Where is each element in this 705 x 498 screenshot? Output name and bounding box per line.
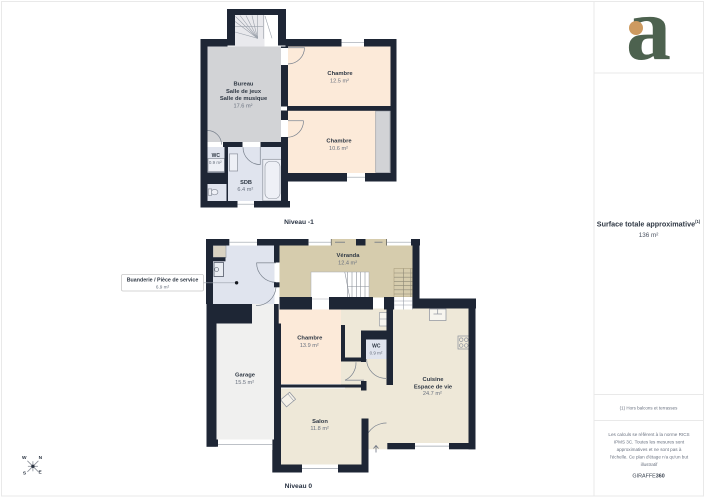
svg-text:24.7 m²: 24.7 m² (423, 391, 442, 397)
svg-text:IPMS 3C. Toutes les mesures so: IPMS 3C. Toutes les mesures sont (614, 440, 685, 445)
svg-text:17.6 m²: 17.6 m² (234, 103, 253, 109)
svg-text:Bureau: Bureau (234, 82, 254, 88)
svg-text:Salon: Salon (312, 419, 328, 425)
svg-text:Buanderie / Pièce de service: Buanderie / Pièce de service (127, 278, 199, 284)
svg-text:13.9 m²: 13.9 m² (300, 343, 319, 349)
svg-text:10.6 m²: 10.6 m² (329, 146, 348, 152)
svg-text:WC: WC (212, 153, 221, 159)
svg-text:l'échelle. Ce plan d'étage n'a: l'échelle. Ce plan d'étage n'a qu'un but (610, 455, 689, 460)
svg-text:illustratif: illustratif (641, 462, 659, 467)
svg-text:(1) Hors balcons et terrasses: (1) Hors balcons et terrasses (620, 406, 679, 411)
svg-text:Garage: Garage (235, 373, 256, 379)
svg-text:approximatives et ne sont pas: approximatives et ne sont pas à (617, 447, 682, 452)
svg-text:Salle de musique: Salle de musique (220, 96, 268, 102)
svg-text:N: N (39, 455, 43, 461)
svg-text:Les calculs se réfèrent à la n: Les calculs se réfèrent à la norme RICS (608, 432, 689, 437)
svg-text:15.5 m²: 15.5 m² (235, 380, 254, 386)
svg-text:Espace de vie: Espace de vie (414, 384, 453, 390)
svg-text:12.4 m²: 12.4 m² (338, 261, 357, 267)
svg-text:0.9 m²: 0.9 m² (370, 350, 383, 355)
svg-text:6.9 m²: 6.9 m² (156, 285, 170, 290)
svg-text:W: W (22, 455, 27, 461)
svg-text:6.4 m²: 6.4 m² (237, 187, 253, 193)
svg-text:0.9 m²: 0.9 m² (209, 160, 222, 165)
svg-text:WC: WC (372, 344, 381, 350)
svg-text:Salle de jeux: Salle de jeux (226, 89, 262, 95)
svg-text:Niveau 0: Niveau 0 (285, 483, 313, 490)
svg-text:136 m²: 136 m² (639, 232, 659, 239)
svg-text:Chambre: Chambre (326, 139, 352, 145)
svg-text:GIRAFFE360: GIRAFFE360 (632, 474, 664, 480)
svg-text:Chambre: Chambre (327, 71, 353, 77)
svg-text:Surface totale approximative(1: Surface totale approximative(1) (597, 219, 701, 229)
svg-text:11.8 m²: 11.8 m² (310, 426, 329, 432)
svg-text:Cuisine: Cuisine (423, 377, 445, 383)
svg-text:Niveau -1: Niveau -1 (284, 219, 314, 226)
svg-text:Chambre: Chambre (297, 336, 323, 342)
svg-text:12.5 m²: 12.5 m² (330, 78, 349, 84)
svg-text:SDB: SDB (240, 180, 252, 186)
svg-text:a: a (626, 0, 671, 79)
svg-text:Véranda: Véranda (337, 253, 361, 259)
